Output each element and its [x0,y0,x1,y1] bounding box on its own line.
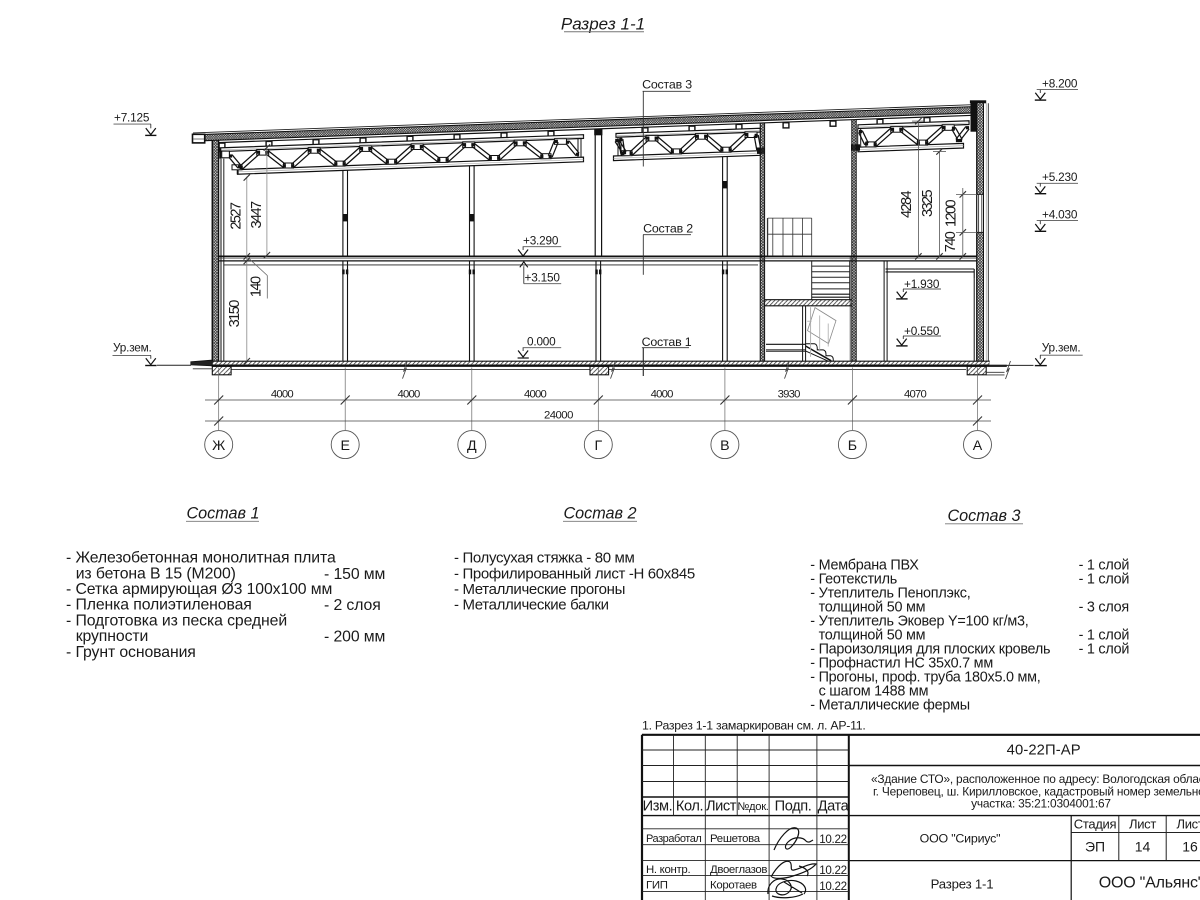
svg-text:+7.125: +7.125 [114,111,150,125]
svg-text:1200: 1200 [944,199,960,227]
svg-text:Ур.зем.: Ур.зем. [113,341,152,355]
svg-text:- 1 слой: - 1 слой [1079,641,1130,657]
svg-text:Дата: Дата [818,799,850,815]
svg-text:- Металлические фермы: - Металлические фермы [810,697,970,713]
svg-text:+3.290: +3.290 [523,233,559,247]
svg-text:- Грунт основания: - Грунт основания [66,644,196,661]
svg-text:140: 140 [249,276,265,297]
svg-text:40-22П-АР: 40-22П-АР [1007,743,1081,759]
svg-text:16: 16 [1182,839,1198,855]
svg-text:10.22: 10.22 [819,833,847,846]
svg-text:Разрез 1-1: Разрез 1-1 [931,877,994,892]
svg-text:10.22: 10.22 [819,864,847,877]
svg-text:4000: 4000 [651,388,673,400]
svg-text:- Металлические прогоны: - Металлические прогоны [454,581,625,598]
svg-text:0.000: 0.000 [527,334,556,348]
svg-text:Лист: Лист [1129,817,1156,832]
svg-text:4284: 4284 [899,190,915,218]
svg-text:Состав 2: Состав 2 [563,505,636,523]
svg-text:- 3 слоя: - 3 слоя [1079,599,1129,615]
svg-text:Лист: Лист [1176,817,1200,832]
svg-text:Н. контр.: Н. контр. [646,864,690,876]
svg-text:+5.230: +5.230 [1042,170,1078,184]
svg-text:- Подготовка из песка средней: - Подготовка из песка средней [66,612,287,629]
svg-text:3150: 3150 [227,300,243,328]
svg-text:- 1 слой: - 1 слой [1079,571,1130,587]
svg-text:Стадия: Стадия [1074,817,1117,832]
svg-text:- 150 мм: - 150 мм [324,566,385,583]
svg-text:4000: 4000 [524,388,546,400]
svg-text:- Полусухая стяжка - 80 мм: - Полусухая стяжка - 80 мм [454,550,635,567]
svg-text:Разрез 1-1: Разрез 1-1 [561,15,645,34]
svg-text:- Железобетонная монолитная п: - Железобетонная монолитная плита [66,550,336,567]
svg-text:Б: Б [848,438,857,454]
svg-text:+3.150: +3.150 [525,271,561,285]
svg-text:крупности: крупности [76,628,149,645]
svg-text:В: В [720,438,729,454]
svg-text:740: 740 [943,231,959,252]
svg-text:Состав 2: Состав 2 [643,221,693,235]
svg-text:из бетона В 15 (М200): из бетона В 15 (М200) [76,565,236,582]
svg-text:- 2 слоя: - 2 слоя [324,597,381,614]
svg-text:участка: 35:21:0304001:67: участка: 35:21:0304001:67 [971,796,1111,810]
svg-text:Коротаев: Коротаев [710,880,757,892]
svg-text:А: А [973,438,983,454]
svg-text:Г: Г [594,438,602,454]
svg-text:Подп.: Подп. [775,799,812,815]
svg-text:1. Разрез 1-1 замаркирован см.: 1. Разрез 1-1 замаркирован см. л. АР-11. [642,718,866,732]
svg-text:ООО "Альянс": ООО "Альянс" [1099,875,1200,892]
svg-text:Решетова: Решетова [710,833,761,845]
svg-text:+4.030: +4.030 [1042,207,1078,221]
svg-text:10.22: 10.22 [819,880,847,893]
svg-text:- Пленка полиэтиленовая: - Пленка полиэтиленовая [66,597,252,614]
svg-text:Состав 3: Состав 3 [947,507,1020,525]
svg-text:4070: 4070 [904,388,926,400]
svg-text:Двоеглазов: Двоеглазов [710,864,767,876]
svg-text:Кол.: Кол. [676,799,703,815]
svg-text:- Сетка армирующая Ø3 100х100: - Сетка армирующая Ø3 100х100 мм [66,581,332,598]
svg-text:- 200 мм: - 200 мм [324,629,385,646]
svg-text:Ж: Ж [212,438,225,454]
svg-text:Состав 1: Состав 1 [642,335,692,349]
svg-text:- Металлические балки: - Металлические балки [454,597,609,614]
svg-text:ООО "Сириус": ООО "Сириус" [920,832,1001,846]
svg-text:3930: 3930 [778,388,800,400]
svg-text:4000: 4000 [271,388,293,400]
svg-text:3325: 3325 [920,189,936,217]
svg-text:ЭП: ЭП [1085,839,1105,855]
svg-text:Ур.зем.: Ур.зем. [1042,341,1081,355]
svg-text:4000: 4000 [398,388,420,400]
svg-text:Лист: Лист [706,799,737,815]
svg-text:24000: 24000 [544,409,573,421]
svg-text:14: 14 [1135,839,1151,855]
svg-text:№док.: №док. [737,801,768,813]
svg-text:ГИП: ГИП [646,880,668,892]
svg-text:- Профилированный лист -Н 60х8: - Профилированный лист -Н 60х845 [454,565,695,582]
svg-text:Состав 3: Состав 3 [642,78,692,92]
svg-text:+8.200: +8.200 [1042,76,1078,90]
svg-text:Е: Е [340,438,349,454]
svg-text:2527: 2527 [229,202,245,230]
svg-text:Изм.: Изм. [643,799,673,815]
svg-text:3447: 3447 [249,201,265,229]
svg-text:Состав 1: Состав 1 [186,505,259,523]
svg-text:Разработал: Разработал [646,833,701,845]
svg-text:Д: Д [467,438,477,454]
